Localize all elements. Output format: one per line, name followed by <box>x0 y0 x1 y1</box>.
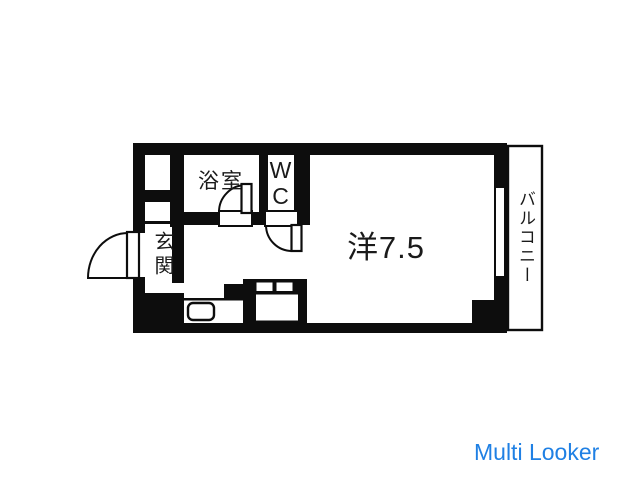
entrance-door-leaf <box>127 232 139 278</box>
bathroom-label: 浴室 <box>192 165 250 195</box>
entrance-door-arc <box>88 233 128 278</box>
entrance-label: 玄関 <box>148 231 177 293</box>
toilet-label: WC <box>267 157 294 210</box>
balcony-window <box>496 188 504 276</box>
balcony-label: バルコニー <box>513 190 538 310</box>
kitchen-unit-tab <box>224 284 244 300</box>
wall-closet-divider <box>145 190 170 202</box>
toilet-door-threshold <box>265 211 298 226</box>
floorplan-drawing <box>0 0 640 480</box>
kitchen-burner-right <box>277 283 293 292</box>
wall-wc-right <box>294 155 310 212</box>
wall-bottom-right-step <box>472 300 498 323</box>
wall-entrance-top-line <box>145 221 172 224</box>
kitchen-unit-box <box>255 294 299 322</box>
toilet-door-arc <box>266 225 292 251</box>
floorplan-canvas: 浴室 WC 玄関 洋7.5 バルコニー Multi Looker <box>0 0 640 480</box>
kitchen-sink <box>188 303 214 320</box>
kitchen-burner-left <box>257 283 273 292</box>
wall-bath-left <box>170 155 184 227</box>
site-watermark: Multi Looker <box>474 439 599 466</box>
wall-top <box>133 143 507 155</box>
toilet-door-leaf <box>292 225 302 251</box>
wall-bottom <box>133 323 507 333</box>
wall-bottom-left-block <box>133 293 184 323</box>
wall-left-upper <box>133 155 145 233</box>
counter-edge-line <box>184 298 243 301</box>
main-room-label: 洋7.5 <box>326 222 446 267</box>
